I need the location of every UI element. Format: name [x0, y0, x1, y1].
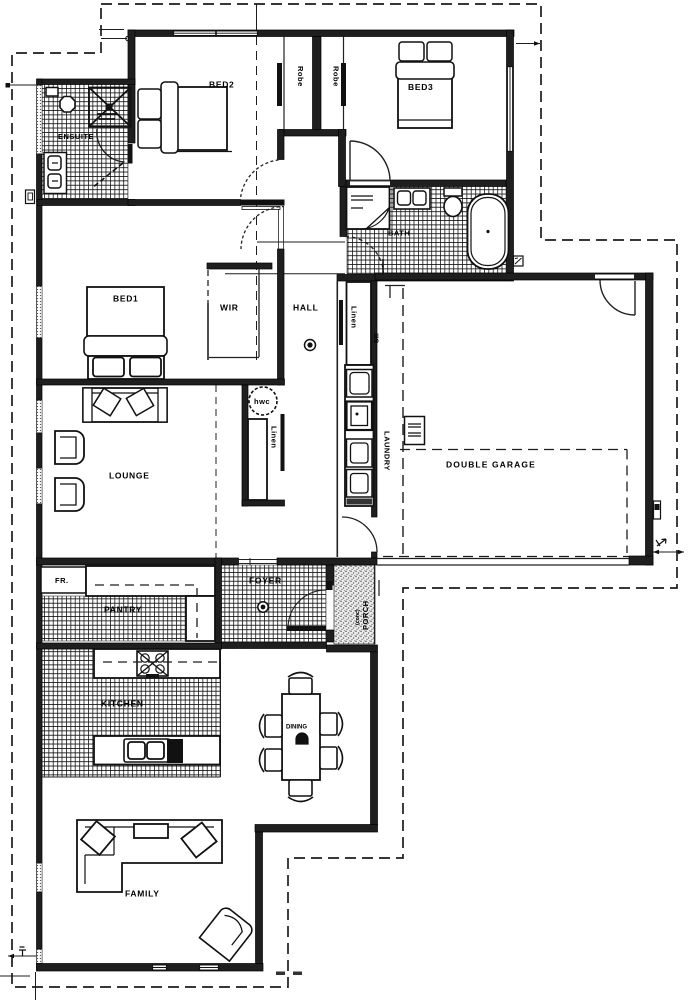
svg-text:DINING: DINING — [286, 725, 307, 731]
svg-text:BATH: BATH — [388, 229, 410, 238]
svg-text:HALL: HALL — [293, 303, 318, 313]
svg-text:PANTRY: PANTRY — [104, 605, 142, 615]
svg-text:BED3: BED3 — [408, 82, 433, 92]
svg-text:ENSUITE: ENSUITE — [58, 132, 94, 141]
svg-text:LOUNGE: LOUNGE — [109, 471, 150, 481]
svg-text:Linen: Linen — [270, 426, 279, 449]
svg-text:BED1: BED1 — [113, 294, 138, 304]
svg-text:FOYER: FOYER — [249, 576, 282, 586]
svg-text:DOUBLE GARAGE: DOUBLE GARAGE — [446, 460, 536, 470]
svg-text:Robe: Robe — [332, 66, 341, 87]
svg-text:FAMILY: FAMILY — [125, 889, 160, 899]
svg-text:LAUNDRY: LAUNDRY — [383, 431, 392, 471]
svg-text:Linen: Linen — [350, 306, 359, 329]
svg-text:WIR: WIR — [220, 303, 239, 313]
svg-text:PORCH: PORCH — [361, 600, 370, 630]
svg-text:FR.: FR. — [55, 576, 69, 585]
svg-text:Robe: Robe — [296, 66, 305, 87]
svg-text:hwc: hwc — [254, 397, 270, 406]
svg-text:Sill: Sill — [374, 333, 381, 343]
svg-text:KITCHEN: KITCHEN — [101, 699, 144, 709]
svg-text:(conc): (conc) — [355, 609, 361, 625]
svg-text:BED2: BED2 — [209, 80, 234, 90]
